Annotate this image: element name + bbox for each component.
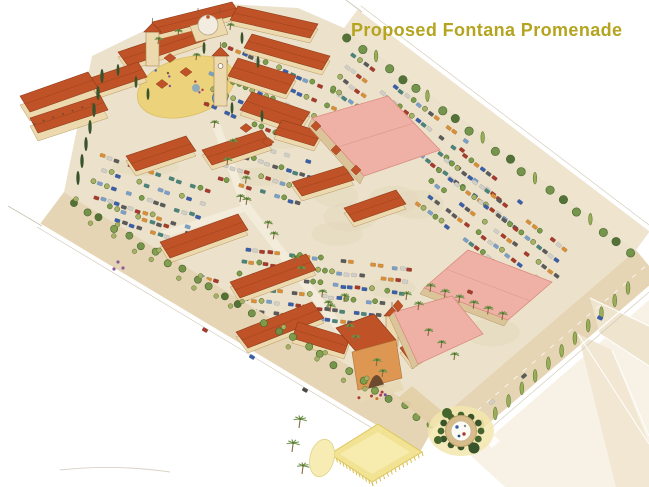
site-plan-illustration [0, 0, 649, 487]
page-title: Proposed Fontana Promenade [351, 20, 622, 41]
screenshot-canvas: Proposed Fontana Promenade [0, 0, 649, 487]
